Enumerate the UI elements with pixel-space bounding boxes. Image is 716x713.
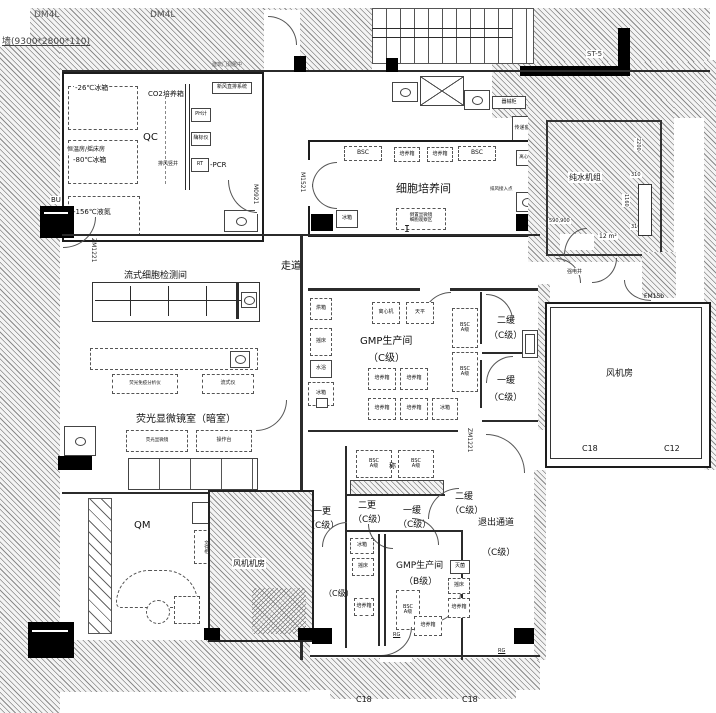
incubator-box: 培养箱 [400,398,428,420]
flow-bench-divider [236,283,239,319]
gmp-c-door-opening [420,287,450,292]
balance-icon [224,210,258,232]
incubator-box: 培养箱 [400,368,428,390]
bu-label: BU [50,196,62,204]
wall-chunk [298,628,312,640]
sink-icon [392,82,418,102]
wall-chunk [312,628,332,644]
room-flow-label: 流式细胞检测间 [124,268,187,281]
printer-block [28,622,74,658]
stair-tag-st5: ST-5 [586,50,603,58]
balance-icon [64,426,96,456]
elisa-reader-box: 酶标仪 [191,132,211,146]
printer-slit [32,630,68,632]
bsc-a-box: BSC A级 [356,450,392,478]
fan-c12-label: C12 [664,444,680,453]
sink-icon [464,90,490,110]
rt-pcr-box: RT [191,158,209,172]
wall-chunk [311,214,333,231]
vent-point-label: 排风接入点 [490,186,513,192]
door-tag-zm1221-right: ZM1221 [466,428,473,453]
stair-wall-vertical [618,28,630,76]
wall-spec-note: 墙(9300*2800*110) [2,34,90,47]
shaft-door-arc [592,258,617,283]
fridge-box: 冰箱 [350,538,374,554]
small-unit-box [316,398,328,408]
change-wall-h [345,494,445,496]
floor-plan: DM4L DM4L 墙(9300*2800*110) 楼梯 ST-5 建筑门洞居… [0,0,716,713]
bsc-a-box: BSC A级 [452,352,478,392]
work-table [128,458,258,490]
room-fan-label: 风机房 [606,366,633,379]
incubator-box: 培养箱 [448,598,470,618]
east-wall-hatch2 [534,470,546,660]
fluo-door-arc [256,400,287,431]
qc-dashed-partition [165,96,166,184]
buffer2-door-arc [486,294,513,321]
bu-panel-slit [44,212,68,214]
stair-rail [372,37,512,38]
incubator-box: 培养箱 [394,147,420,162]
oven-box: 烘箱 [310,298,332,320]
change-wall [345,446,347,530]
weigh-label: 称 [389,461,396,471]
dim-1160: 1160 [622,194,630,207]
exit-corridor-label: 退出通道 [478,515,514,528]
room-pure-water-label: 纯水机组 [568,172,602,183]
stair-rail [372,28,512,29]
left-wall-band [0,46,60,713]
flow-bench-line [95,300,255,301]
qc-bench-line [185,84,186,190]
pass-box-buffer [522,330,538,358]
buffer1b-label: 一缓 [403,503,421,516]
fridge-box: 冰箱 [432,398,458,420]
weigh-bench-hatch [350,480,444,495]
fridge-80-label: -80℃冰箱 [72,155,107,165]
vent-shaft-label: 排风竖井 [158,160,178,167]
room-cell-culture-label: 细胞培养间 [396,180,451,196]
pure-water-bench [638,184,652,236]
wall-chunk [58,456,92,470]
obs-area-label: 细胞观察区 [410,219,433,224]
door-tag-m1521: M1521 [299,172,306,192]
fan-c18-label: C18 [582,444,598,453]
gmp-b-bottom-wall [310,655,540,657]
bsc-a-box: BSC A级 [452,308,478,348]
gmp-b-corridor-grade: （C级） [324,588,354,599]
room-fan2-label: 风机机房 [232,558,266,569]
gmp-c-bottom-wall [308,430,458,432]
incubator-box: 培养箱 [368,368,396,390]
exit-corridor-grade: （C级） [482,545,515,558]
room-qm-label: QM [134,520,151,531]
shaker-box: 摇床 [448,578,470,594]
buffer1-grade: （C级） [489,390,522,403]
wall-tag-dm4l-left: DM4L [34,10,59,20]
wall-tag-dm4l-right: DM4L [150,10,175,20]
door-centering-note: 建筑门洞居中 [212,61,242,68]
balance-box: 天平 [406,302,434,324]
sterilizer-box: 灭菌 [450,560,470,574]
cell-door-opening [306,160,312,206]
bottom-c18-left: C18 [356,695,372,704]
fridge-box: 冰箱 [336,210,358,228]
buffer1-door-arc [486,356,513,383]
ln2-label: -156℃液氮 [72,207,112,217]
incubator-box: 培养箱 [354,598,374,616]
dim-310: 310 [630,172,642,178]
area-12m2-label: 12 m² [598,233,618,240]
rg-label2: RG [498,648,505,654]
flow-bench [92,282,260,322]
pcr-label: -PCR [210,161,227,169]
bottom-band-left [60,640,310,692]
staircase [372,8,534,64]
room-gmp-b-grade: （B级） [404,574,437,587]
centrifuge-box: 离心机 [372,302,400,324]
room-fluo-label: 荧光显微镜室（暗室） [136,410,236,425]
equipment-icon [241,292,257,308]
grade-a-label: A级 [461,372,469,378]
room-gmp-c-grade: （C级） [368,349,405,364]
wall-chunk [204,628,220,640]
gmp-b-duct-wall [378,534,380,646]
incubator-box: 培养箱 [368,398,396,420]
water-bath-box: 水浴 [310,360,332,378]
balance-icon [230,351,250,368]
grade-a-label: A级 [412,464,420,470]
air-diffuser-icon [420,76,464,106]
grade-a-label: A级 [461,328,469,334]
buffer-wall [480,292,482,344]
dim-2200: 2200 [634,138,642,151]
qc-bench-line [189,84,190,190]
ph-meter-box: PH计 [191,108,211,122]
qm-top-wall [62,492,212,494]
shaker-box: 摇床 [352,558,374,576]
flow-bench-tick [206,286,207,316]
buffer2-grade: （C级） [489,328,522,341]
grade-a-label: A级 [370,464,378,470]
file-cabinet-label: 文件柜 [203,540,208,554]
fridge-26-label: -26℃冰箱 [74,83,109,93]
wall-chunk [294,56,306,72]
room-fan-inner [550,307,702,459]
flow-bench-tick [130,286,131,316]
grade-a-label: A级 [404,610,412,616]
flow-cytometer-box: 流式仪 [202,374,254,394]
exhaust-note-box: 新风直排系统 [212,82,252,94]
door-tag-zm1221-left: ZM1221 [90,238,97,263]
flow-bench-tick [168,286,169,316]
qm-side-table [174,596,200,624]
fluo-microscope-box: 荧光显微镜 [126,430,188,452]
shaker-room-label: 恒温房/摇床房 [66,144,106,153]
qm-chair [146,600,170,624]
gmp-b-right-wall [461,530,463,660]
cabinet-box: 器械柜 [492,96,526,109]
bsc-a-box: BSC A级 [398,450,434,478]
door-tag-m0921: M0921 [252,184,259,204]
buffer-divider [482,420,538,422]
wall-chunk [386,58,398,72]
incubator-box: 培养箱 [427,147,453,162]
bsc-box: BSC [344,146,382,161]
change1-label: 一更 [313,504,331,517]
bsc-box: BSC [458,146,496,161]
buffer-wall [480,360,482,408]
door-tag-fm15b: FM15b [644,293,664,300]
gmp-b-door-arc [381,627,412,656]
wall-chunk [514,628,534,644]
room-qc-label: QC [143,132,158,143]
bench-box: 操作台 [196,430,252,452]
elec-shaft-label: 强电井 [566,268,583,275]
shaker-box: 摇床 [310,328,332,356]
room-gmp-c-label: GMP生产间 [360,332,412,347]
exit-door-arc [486,434,525,473]
bottom-band-center [310,658,540,690]
change2-label: 二更 [358,498,376,511]
qm-shelving [88,498,112,634]
dim-590-900: 590,900 [548,218,571,224]
immuno-analyzer-box: 荧光免疫分析仪 [112,374,178,394]
gmp-b-top-wall [345,530,463,532]
incubator-box: 培养箱 [414,616,442,636]
corridor-label: 走道 [281,257,301,272]
bottom-c18-right: C18 [462,695,478,704]
room-gmp-b-label: GMP生产间 [396,558,443,571]
